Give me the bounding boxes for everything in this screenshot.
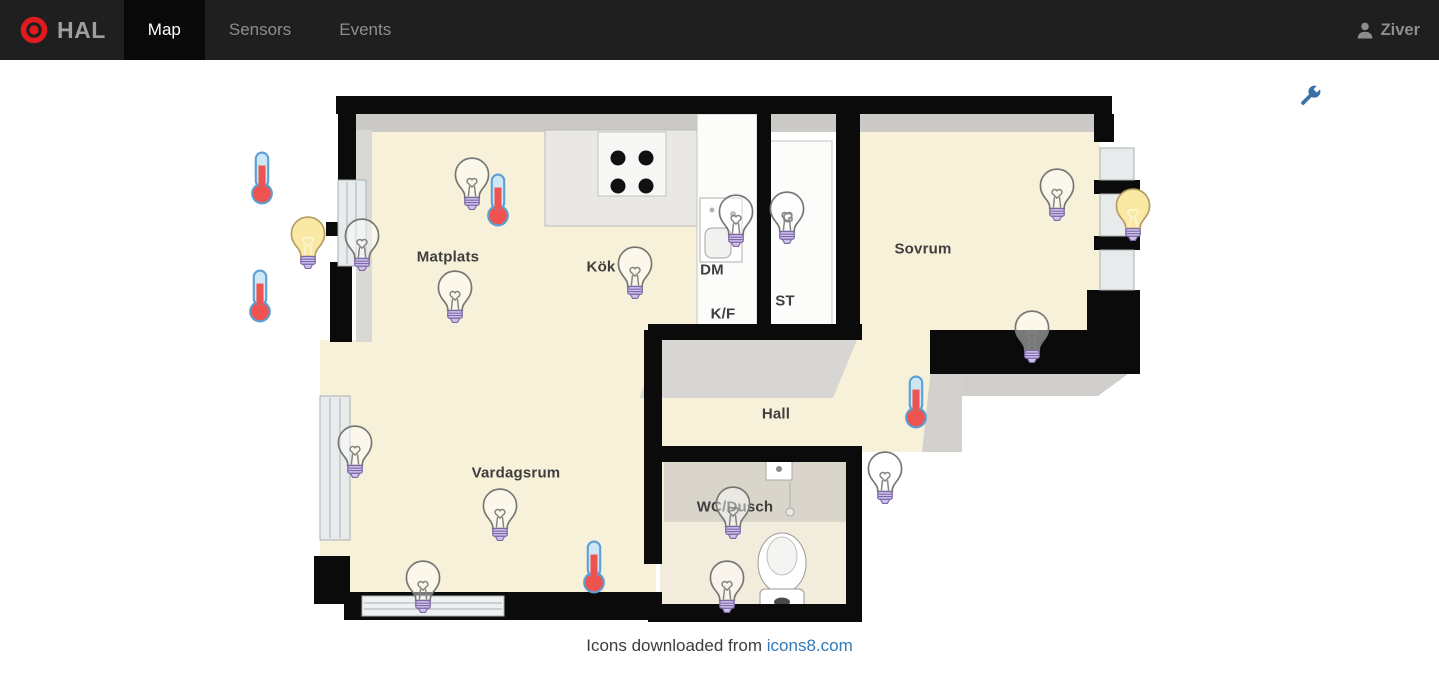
bulb-icon[interactable] — [403, 558, 443, 614]
device-layer: MatplatsKökDMK/FSTGSovrumHallVardagsrumW… — [0, 0, 1439, 675]
attribution-text: Icons downloaded from — [586, 636, 762, 655]
attribution: Icons downloaded from icons8.com — [0, 636, 1439, 656]
thermometer-icon[interactable] — [483, 172, 513, 228]
room-label-st: ST — [775, 293, 795, 310]
room-label-k-k: Kök — [587, 259, 616, 276]
bulb-icon[interactable] — [288, 214, 328, 270]
room-label-matplats: Matplats — [417, 249, 479, 266]
room-label-hall: Hall — [762, 406, 790, 423]
map-area: MatplatsKökDMK/FSTGSovrumHallVardagsrumW… — [0, 60, 1439, 635]
bulb-icon[interactable] — [480, 486, 520, 542]
bulb-icon[interactable] — [335, 423, 375, 479]
bulb-icon[interactable] — [713, 484, 753, 540]
room-label-sovrum: Sovrum — [894, 241, 951, 258]
room-label-dm: DM — [700, 262, 724, 279]
bulb-icon[interactable] — [1113, 186, 1153, 242]
bulb-icon[interactable] — [707, 558, 747, 614]
bulb-icon[interactable] — [767, 189, 807, 245]
bulb-icon[interactable] — [342, 216, 382, 272]
room-label-k-f: K/F — [711, 306, 736, 323]
bulb-icon[interactable] — [1012, 308, 1052, 364]
thermometer-icon[interactable] — [247, 150, 277, 206]
bulb-icon[interactable] — [865, 449, 905, 505]
thermometer-icon[interactable] — [245, 268, 275, 324]
bulb-icon[interactable] — [1037, 166, 1077, 222]
thermometer-icon[interactable] — [579, 539, 609, 595]
thermometer-icon[interactable] — [901, 374, 931, 430]
room-label-vardagsrum: Vardagsrum — [472, 465, 561, 482]
icons8-link[interactable]: icons8.com — [767, 636, 853, 655]
bulb-icon[interactable] — [435, 268, 475, 324]
bulb-icon[interactable] — [716, 192, 756, 248]
bulb-icon[interactable] — [615, 244, 655, 300]
